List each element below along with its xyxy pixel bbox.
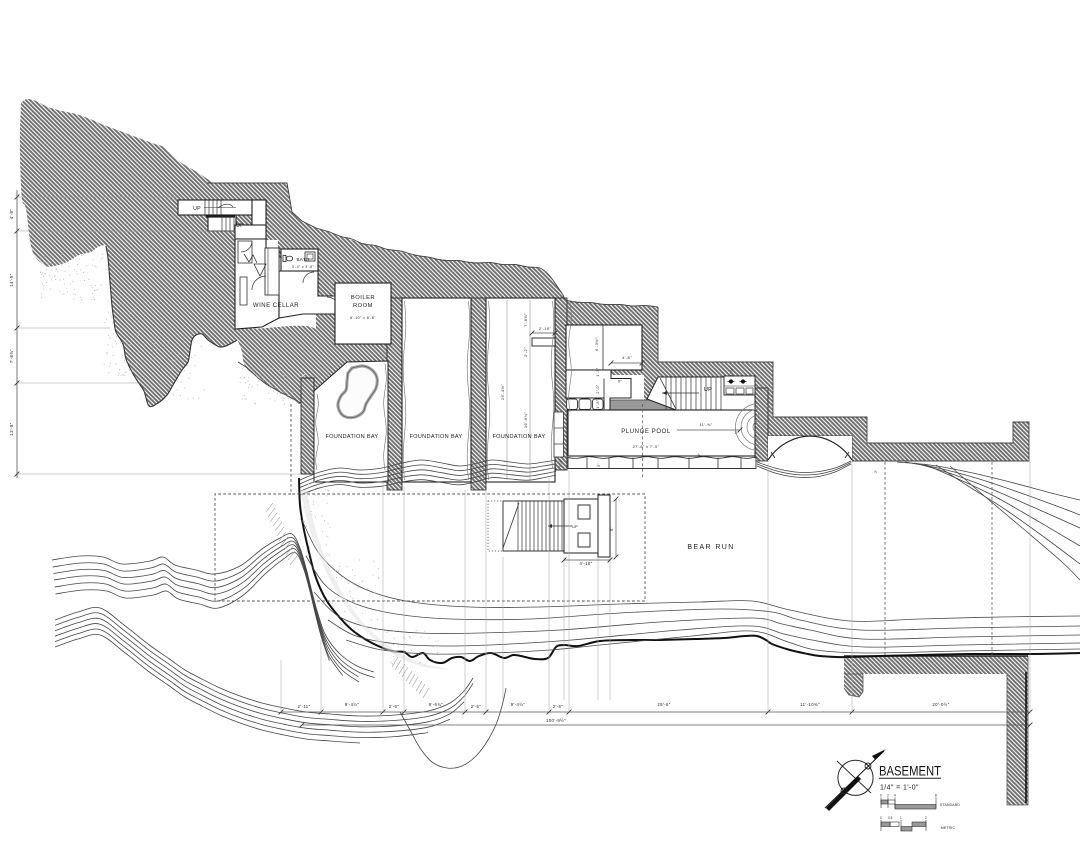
svg-text:BATH: BATH [296,257,309,262]
svg-text:1'-5": 1'-5" [596,367,600,376]
svg-text:UP: UP [704,387,712,393]
svg-text:BASEMENT: BASEMENT [879,764,941,779]
svg-text:29'-6": 29'-6" [657,702,670,707]
svg-text:100'-9½": 100'-9½" [546,718,566,723]
svg-text:4'-8": 4'-8" [9,209,14,220]
svg-text:9'-4½": 9'-4½" [511,702,526,707]
svg-text:BOILER: BOILER [351,295,375,301]
svg-text:11'-⅜": 11'-⅜" [699,422,713,427]
svg-text:1/4" = 1'-0": 1/4" = 1'-0" [880,785,919,792]
svg-text:UP: UP [236,223,244,229]
svg-text:9'-6¾": 9'-6¾" [429,702,444,707]
svg-text:2'-10": 2'-10" [539,326,552,331]
svg-text:2'-0": 2'-0" [596,384,600,393]
svg-text:2: 2 [925,816,927,820]
svg-text:20'-0½": 20'-0½" [932,702,949,707]
svg-text:3": 3" [597,463,601,467]
svg-text:7'-8⅜": 7'-8⅜" [523,313,528,327]
svg-text:1': 1' [734,431,737,435]
svg-text:6'-3½": 6'-3½" [594,337,599,351]
svg-text:2'-11": 2'-11" [297,704,310,709]
svg-text:2'-6": 2'-6" [389,704,400,709]
svg-text:FOUNDATION BAY: FOUNDATION BAY [409,434,462,440]
svg-text:4'-10": 4'-10" [579,561,592,566]
svg-text:3'-4" x 3'-6": 3'-4" x 3'-6" [292,265,315,269]
svg-text:8'-10" x 8'-8": 8'-10" x 8'-8" [350,316,376,320]
svg-text:7'-6": 7'-6" [559,458,563,467]
svg-text:STANDARD: STANDARD [940,803,960,807]
svg-text:PLUNGE POOL: PLUNGE POOL [621,429,671,435]
svg-text:2'-9": 2'-9" [730,367,734,376]
svg-text:ROOM: ROOM [353,303,373,309]
svg-text:FOUNDATION BAY: FOUNDATION BAY [492,434,545,440]
svg-text:METRIC: METRIC [941,826,956,830]
svg-text:BEAR RUN: BEAR RUN [687,544,734,551]
svg-text:11'-10⅜": 11'-10⅜" [800,702,820,707]
svg-text:1'-8": 1'-8" [596,399,600,408]
svg-text:4'-8": 4'-8" [622,355,632,360]
svg-text:0: 0 [880,816,882,820]
svg-text:1: 1 [900,816,902,820]
svg-text:27'-6" x 7'-0": 27'-6" x 7'-0" [633,445,660,449]
svg-text:0: 0 [880,794,882,798]
svg-text:16'-6¾": 16'-6¾" [523,412,528,429]
svg-text:6': 6' [610,527,614,531]
svg-text:9'-4½": 9'-4½" [345,702,360,707]
svg-text:13'-8": 13'-8" [9,422,14,435]
svg-text:5": 5" [618,380,622,384]
svg-text:2'-6": 2'-6" [553,704,564,709]
svg-text:UP: UP [193,206,201,212]
svg-text:2'-2": 2'-2" [523,347,528,357]
svg-text:FOUNDATION BAY: FOUNDATION BAY [325,434,378,440]
svg-text:7'-8⅜": 7'-8⅜" [9,349,14,364]
svg-text:14'-5": 14'-5" [9,273,14,286]
svg-text:UP: UP [572,525,578,529]
svg-text:4: 4 [894,794,896,798]
svg-text:8: 8 [935,794,937,798]
svg-text:2: 2 [887,794,889,798]
svg-text:WINE CELLAR: WINE CELLAR [253,303,299,309]
svg-text:0.5: 0.5 [888,816,893,820]
svg-text:2'-6": 2'-6" [471,704,482,709]
svg-text:26'-4½": 26'-4½" [500,384,505,401]
